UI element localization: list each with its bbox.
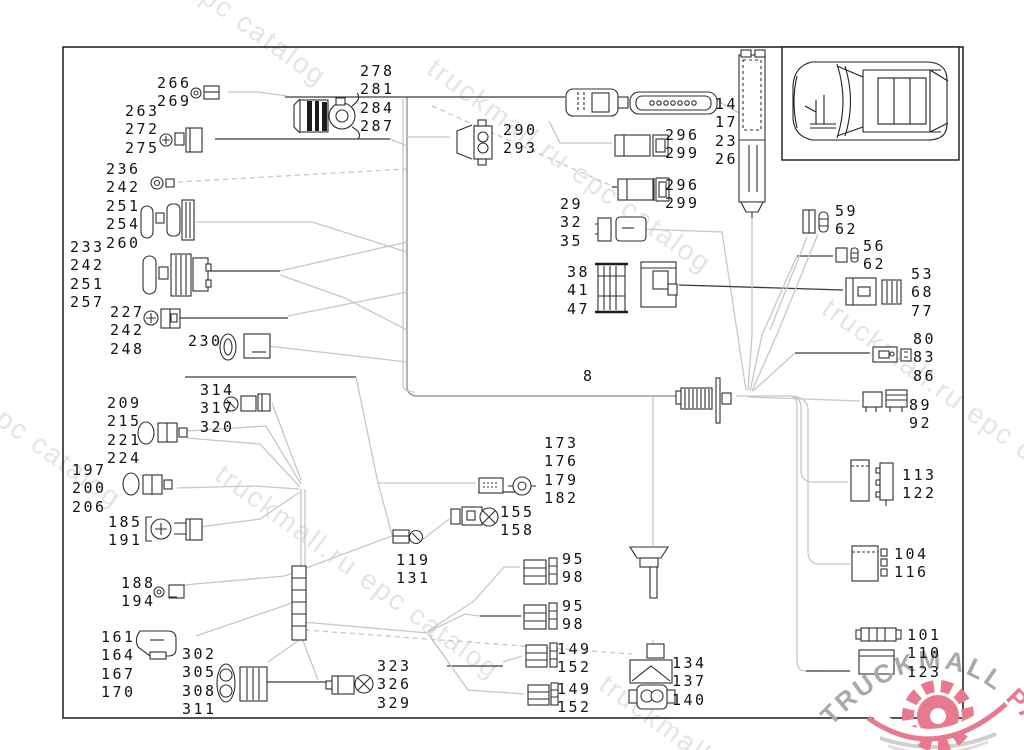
connector-323-326-329: [326, 675, 373, 694]
connector-155-158: [451, 507, 498, 526]
connector-89-92: [863, 390, 907, 412]
connector-278-281-284-287: [294, 93, 360, 139]
connector-113-122: [851, 460, 893, 506]
connector-251-254-260: [141, 200, 194, 240]
connector-top-module: [566, 89, 717, 116]
connector-95-98-b: [524, 603, 557, 629]
parts-catalog-diagram-page: truckmall.ru epc catalog truckmall.ru ep…: [0, 0, 1024, 750]
connector-296-299-a: [615, 135, 668, 156]
harness-wrap-segment: [292, 566, 306, 640]
connector-185-191: [146, 517, 202, 541]
connector-strip-14-17-23-26: [739, 50, 765, 218]
connector-230: [220, 334, 270, 360]
connector-161-164-167-170: [136, 631, 176, 659]
connector-80-83-86: [873, 347, 911, 362]
connector-236-242: [151, 177, 174, 189]
connector-296-299-b: [618, 178, 669, 201]
connector-266-269: [191, 86, 219, 99]
connector-29-32-35: [595, 217, 646, 241]
connector-59-62: [803, 210, 828, 233]
connector-119-131: [393, 530, 423, 544]
connector-302-305-308-311: [217, 664, 267, 702]
connector-56-62: [836, 248, 858, 262]
connector-149-152-b: [528, 683, 558, 705]
connector-197-200-206: [123, 473, 172, 495]
connector-104-116: [852, 546, 887, 581]
harness-wires: [177, 92, 870, 694]
connector-95-98-a: [524, 558, 557, 584]
gear-icon: [868, 686, 1006, 750]
connector-134-137-140: [629, 547, 675, 709]
connector-227-242-248: [144, 309, 180, 328]
connector-53-68-77: [846, 278, 901, 305]
connector-38-41-47: [595, 262, 677, 312]
connector-209-215-221-224: [138, 422, 187, 444]
connector-290-293: [457, 120, 492, 165]
connector-314-317-320: [224, 394, 270, 411]
connector-188-194: [154, 585, 184, 598]
vehicle-inset: [782, 47, 959, 160]
connector-263-272-275: [160, 128, 202, 152]
connector-149-152-a: [526, 643, 557, 667]
connector-233-242-251-257: [143, 254, 211, 296]
wiring-harness-diagram: TRUCKMALL PARTS: [0, 0, 1024, 750]
connector-main-harness-8: [676, 378, 731, 423]
